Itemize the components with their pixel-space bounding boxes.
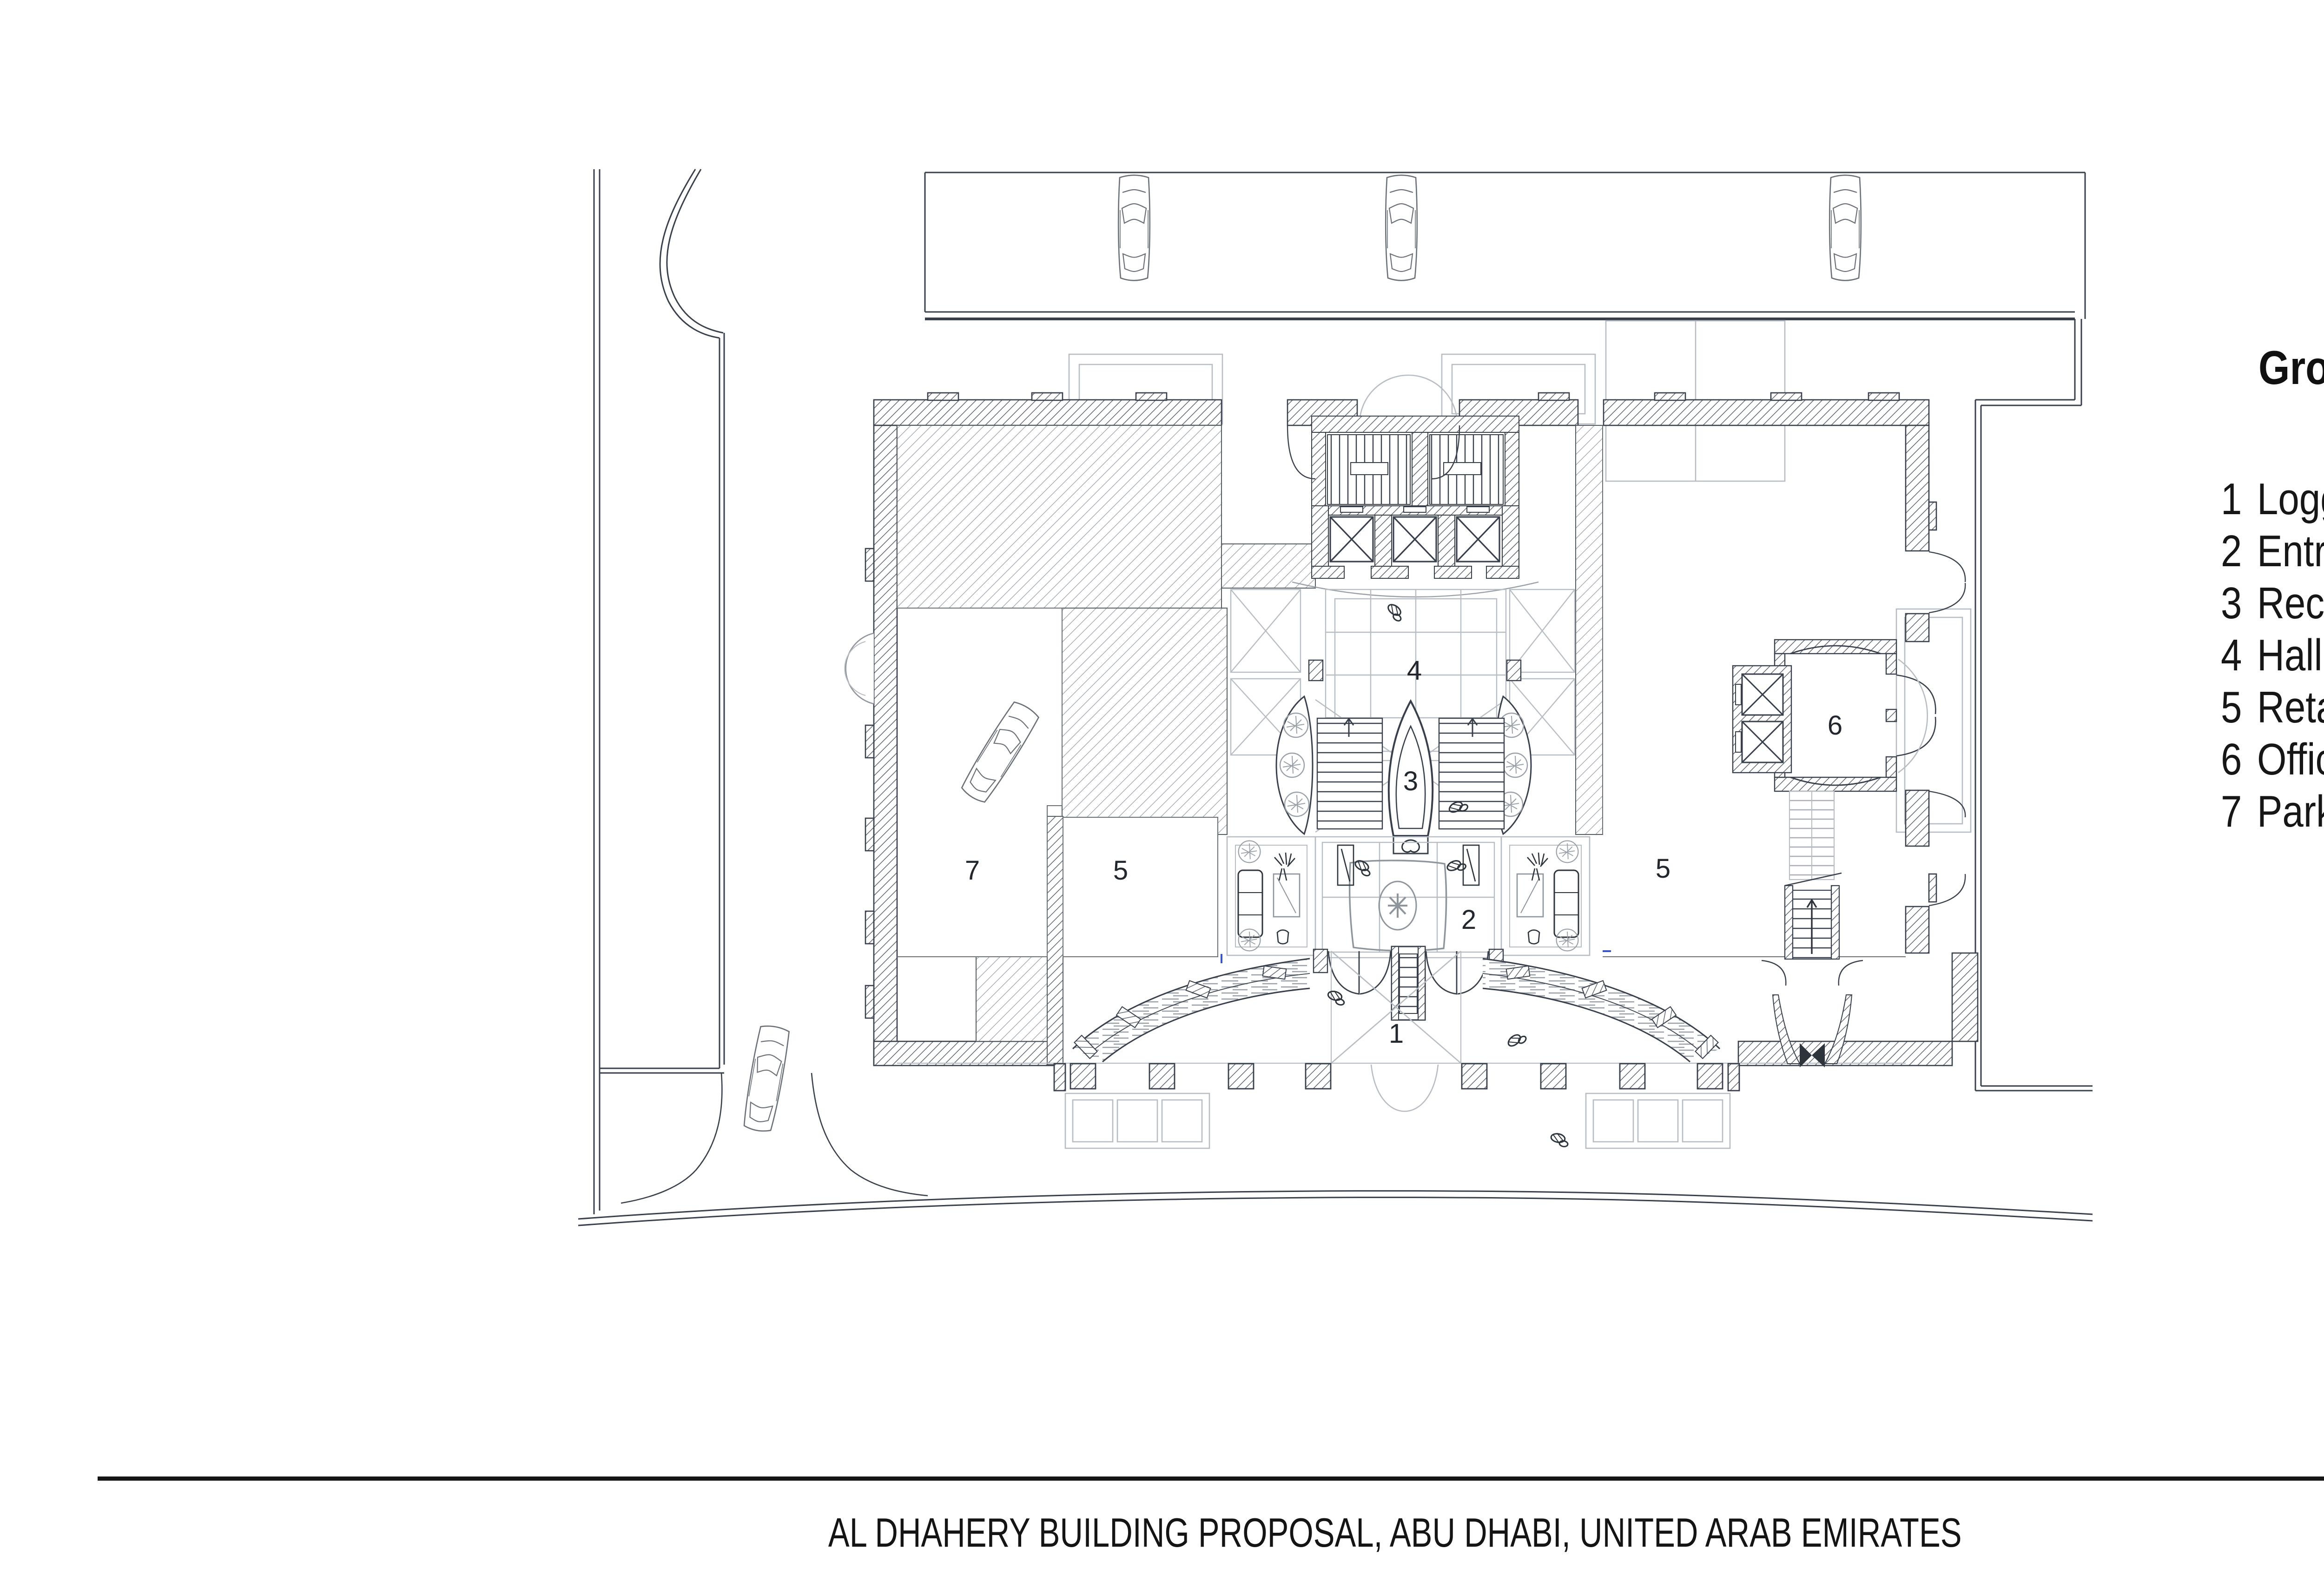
- sheet-caption: AL DHAHERY BUILDING PROPOSAL, ABU DHABI,…: [828, 1509, 1962, 1556]
- room-label-hall: 4: [1407, 655, 1422, 686]
- room-label-offices: 6: [1828, 710, 1842, 741]
- revolving-door: [1392, 947, 1425, 1020]
- parked-cars: [1118, 175, 1861, 281]
- car-icon: [1386, 175, 1417, 281]
- lounge-alcove-left: [1227, 837, 1315, 955]
- retail-left-room: [1063, 817, 1218, 957]
- car-icon: [741, 1024, 791, 1133]
- room-label-entrance: 2: [1461, 905, 1476, 935]
- loggia-ramp-right: [1483, 959, 1720, 1062]
- entrance-lounge: [1315, 837, 1501, 958]
- sofa: [1238, 870, 1262, 937]
- stair-treads: [1317, 718, 1382, 829]
- drawing-sheet: 1 2 3 4 5 5 6 7 Ground Floor Plan 1 Logg…: [0, 0, 2324, 1569]
- west-wall: [874, 425, 897, 1065]
- room-label-reception: 3: [1403, 766, 1418, 796]
- sheet-caption-wrap: AL DHAHERY BUILDING PROPOSAL, ABU DHABI,…: [98, 1509, 2324, 1556]
- sofa: [1554, 870, 1578, 937]
- lounge-alcove-right: [1501, 837, 1590, 955]
- room-label-retail-right: 5: [1656, 854, 1670, 884]
- elevator-icon: [1736, 722, 1783, 762]
- colonnade-columns: [1054, 1064, 1739, 1091]
- ground-floor-plan-drawing: 1 2 3 4 5 5 6 7: [0, 0, 2324, 1569]
- car-icon: [1829, 175, 1861, 281]
- legend-title: Ground Floor Plan: [2258, 341, 2324, 395]
- room-label-loggia: 1: [1389, 1019, 1404, 1049]
- car-icon: [958, 699, 1041, 805]
- chandelier-icon: [1527, 853, 1548, 880]
- chandelier-icon: [1274, 853, 1295, 880]
- elevator-icon: [1736, 674, 1783, 715]
- room-label-parking: 7: [965, 855, 980, 886]
- room-label-retail-left: 5: [1113, 855, 1128, 886]
- stair-treads: [1439, 718, 1504, 829]
- loggia-ramp-left: [1073, 959, 1310, 1062]
- vertical-core: [1292, 416, 1538, 597]
- east-wall: [1906, 425, 1929, 551]
- road-edge-south: [578, 1191, 2093, 1225]
- car-icon: [1118, 175, 1150, 281]
- footer-rule: [98, 1476, 2324, 1481]
- road-edge-east: [1975, 172, 2093, 1091]
